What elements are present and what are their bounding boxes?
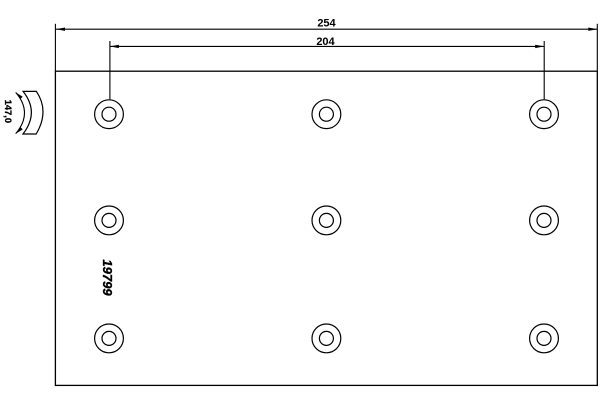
- svg-text:204: 204: [316, 36, 335, 48]
- svg-text:254: 254: [317, 17, 336, 29]
- svg-text:147,0: 147,0: [3, 100, 14, 123]
- svg-text:19799: 19799: [100, 259, 115, 296]
